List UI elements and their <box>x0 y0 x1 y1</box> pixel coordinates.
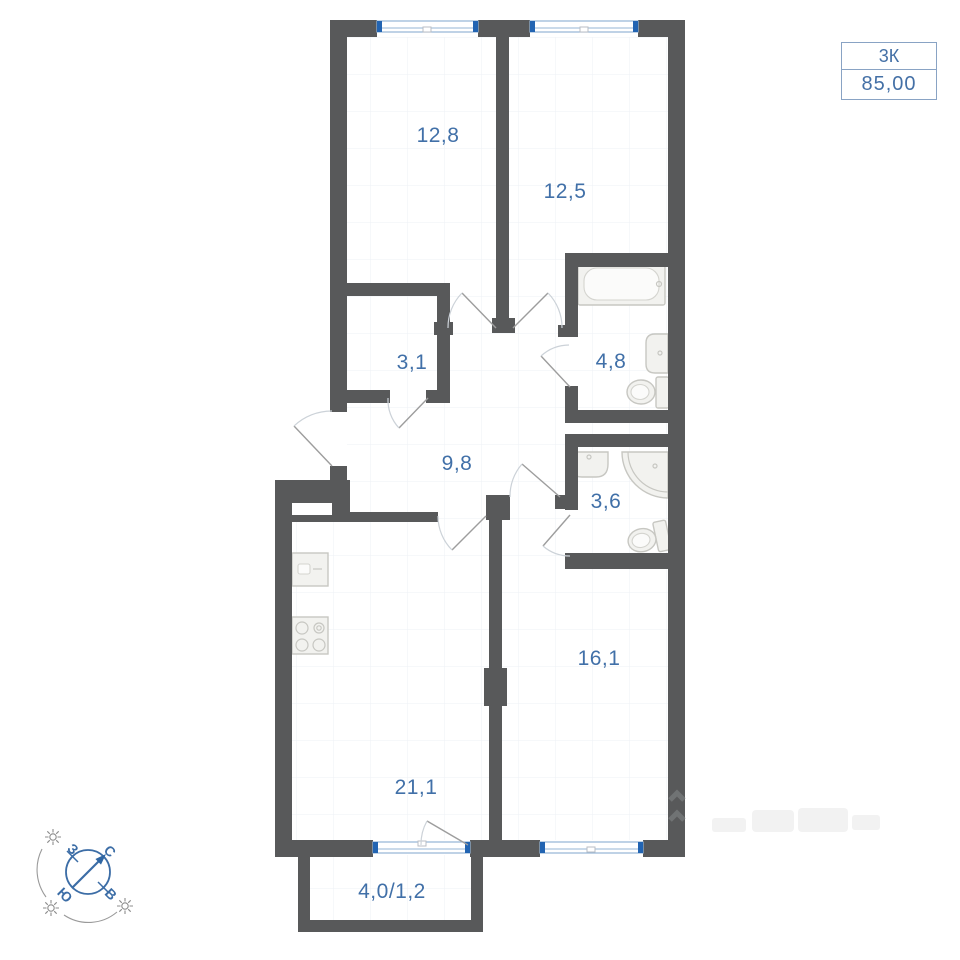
floor-grid <box>292 37 668 920</box>
window-bedroom-1 <box>377 21 478 32</box>
window-tick <box>418 841 426 846</box>
window-cap <box>540 842 545 853</box>
window-cap <box>638 842 643 853</box>
wall-segment <box>558 325 574 337</box>
window-cap <box>373 842 378 853</box>
wall-segment <box>330 390 390 403</box>
toilet-bowl-inner <box>631 385 649 400</box>
sun-icon <box>43 900 59 916</box>
sun-core <box>48 905 54 911</box>
floor-plan-page: 12,8 12,5 3,1 4,8 9,8 3,6 16,1 21,1 4,0/… <box>0 0 960 960</box>
watermark-blob <box>798 808 848 832</box>
sun-icon <box>45 829 61 845</box>
wall-segment <box>484 668 507 706</box>
wall-segment <box>434 322 453 335</box>
sink-icon-bathroom <box>646 334 668 373</box>
sun-core <box>50 834 56 840</box>
bathtub-icon <box>578 263 665 305</box>
room-area-label-bathroom: 4,8 <box>596 350 627 373</box>
wall-segment <box>565 253 578 337</box>
wall-segment <box>565 434 685 447</box>
wall-segment <box>275 480 292 857</box>
bathtub-inner <box>584 268 659 300</box>
wall-segment <box>492 318 515 333</box>
wall-segment <box>565 253 685 267</box>
room-area-label-bedroom-2: 12,5 <box>544 180 587 203</box>
door-entrance <box>294 411 332 466</box>
floor-plan: 12,8 12,5 3,1 4,8 9,8 3,6 16,1 21,1 4,0/… <box>0 0 960 960</box>
toilet-tank <box>656 377 669 408</box>
door-leaf <box>294 426 332 466</box>
wall-segment <box>345 283 448 296</box>
wall-segment <box>426 390 450 403</box>
stove-icon <box>292 617 328 654</box>
window-cap <box>377 21 382 32</box>
wall-segment <box>565 553 685 569</box>
wall-segment <box>330 20 347 412</box>
sun-rays <box>43 900 59 916</box>
door-swing-arc <box>294 411 332 426</box>
wall-segment <box>275 840 373 857</box>
room-area-label-bedroom-1: 12,8 <box>417 124 460 147</box>
watermark <box>670 793 880 832</box>
window-tick <box>587 847 595 852</box>
wall-segment <box>496 20 509 326</box>
window-living-room <box>540 842 643 853</box>
compass-arc-left <box>37 849 46 897</box>
total-area-label: 85,00 <box>842 70 936 99</box>
sink-bowl <box>646 334 668 373</box>
sun-rays <box>45 829 61 845</box>
watermark-blob <box>712 818 746 832</box>
window-cap <box>473 21 478 32</box>
wall-segment <box>555 495 578 509</box>
room-area-label-balcony: 4,0/1,2 <box>358 880 426 903</box>
wall-segment <box>470 840 540 857</box>
window-cap <box>530 21 535 32</box>
compass-arc-bottom <box>64 912 117 922</box>
compass-rose: С В Ю З <box>37 829 133 922</box>
sun-core <box>122 903 128 909</box>
room-area-label-shower-room: 3,6 <box>591 490 622 513</box>
wall-segment <box>565 386 578 412</box>
kitchen-sink-icon <box>292 553 328 586</box>
sun-icon <box>117 898 133 914</box>
room-area-label-living-room: 16,1 <box>578 647 621 670</box>
flat-type-label: 3К <box>842 43 936 70</box>
sink-bowl <box>298 564 310 574</box>
wall-segment <box>437 283 450 403</box>
watermark-blob <box>752 810 794 832</box>
room-area-label-closet: 3,1 <box>397 351 428 374</box>
wall-segment-balcony <box>471 855 483 932</box>
watermark-blob <box>852 815 880 830</box>
window-cap <box>633 21 638 32</box>
window-tick <box>423 27 431 32</box>
wall-segment-balcony <box>298 920 483 932</box>
wall-duct-notch <box>292 503 332 515</box>
room-area-label-hallway: 9,8 <box>442 452 473 475</box>
title-box: 3К 85,00 <box>841 42 937 100</box>
sun-rays <box>117 898 133 914</box>
wall-segment <box>330 466 347 482</box>
window-bedroom-2 <box>530 21 638 32</box>
window-tick <box>580 27 588 32</box>
room-area-label-kitchen-living: 21,1 <box>395 776 438 799</box>
wall-segment <box>565 410 685 423</box>
